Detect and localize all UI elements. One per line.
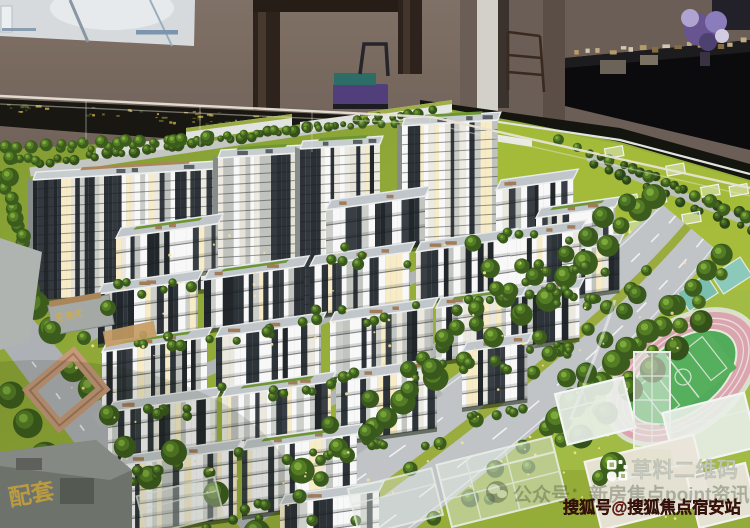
svg-text:搜狐号@搜狐焦点宿安站: 搜狐号@搜狐焦点宿安站 [563, 498, 741, 517]
svg-text:草料二维码: 草料二维码 [631, 458, 739, 482]
